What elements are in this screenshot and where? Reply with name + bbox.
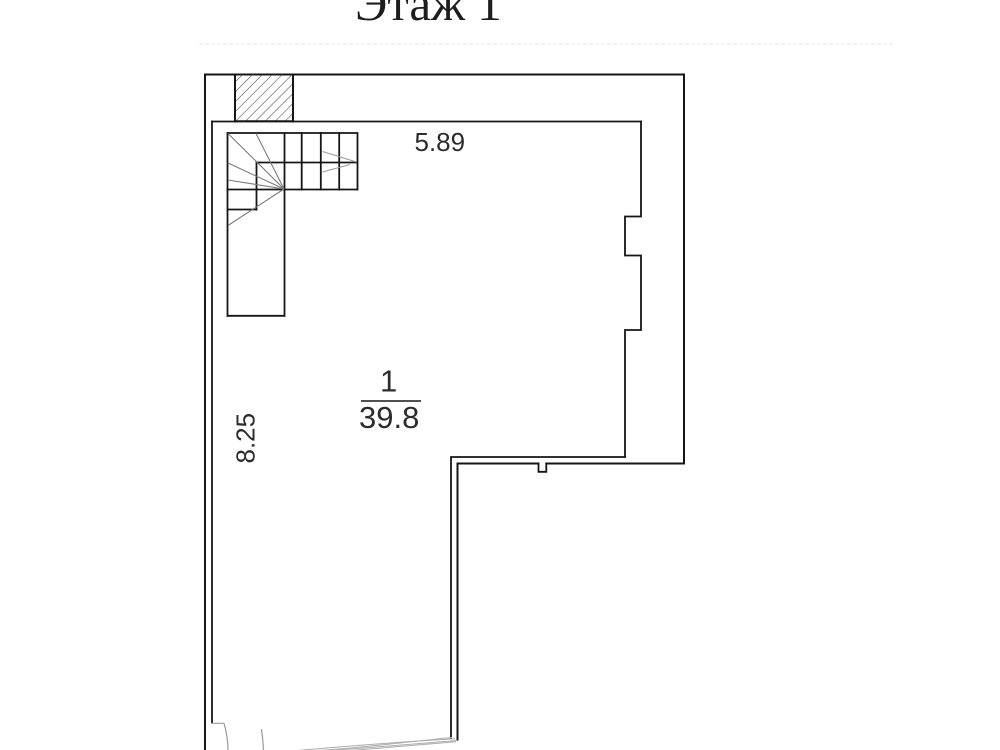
svg-text:5.89: 5.89 [415,127,466,157]
svg-text:1: 1 [380,363,397,398]
svg-text:39.8: 39.8 [359,400,419,435]
svg-text:8.25: 8.25 [231,413,261,464]
